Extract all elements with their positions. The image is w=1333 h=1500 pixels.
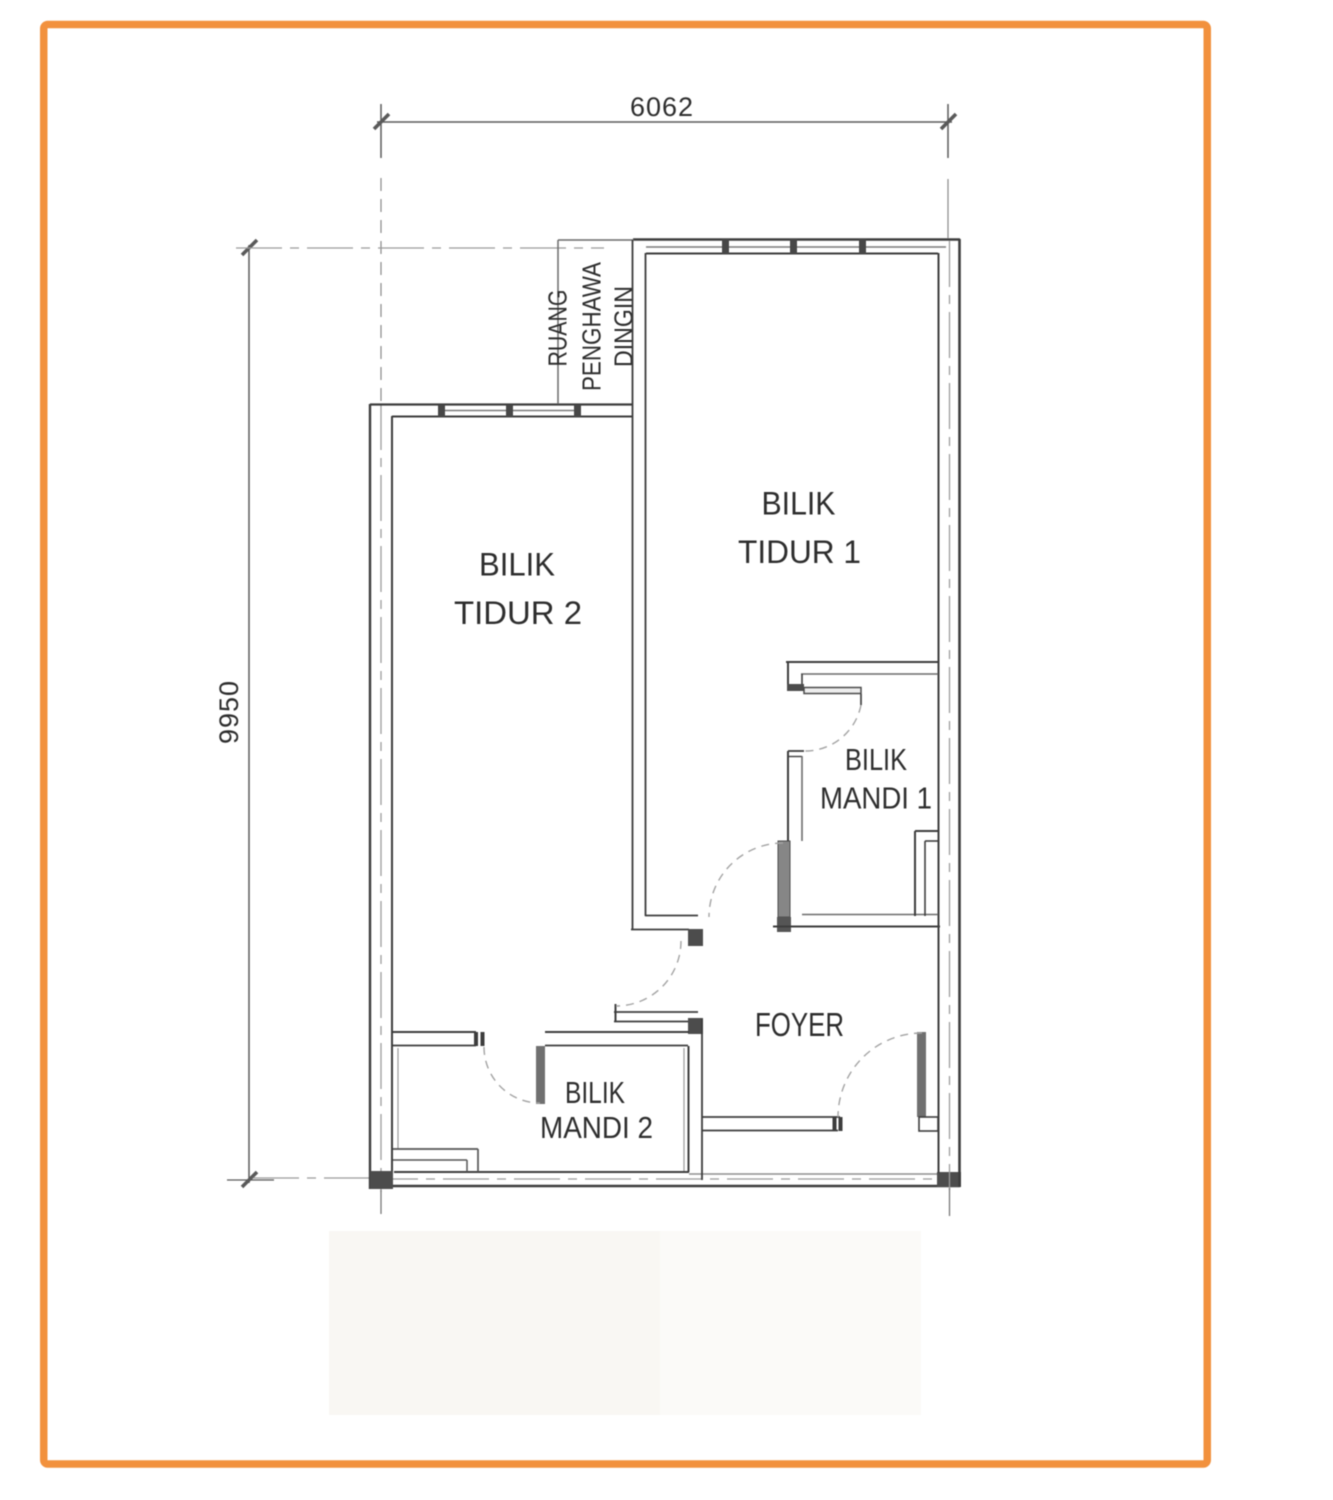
svg-text:MANDI 2: MANDI 2: [540, 1110, 653, 1145]
svg-text:BILIK: BILIK: [845, 742, 907, 777]
svg-text:TIDUR 2: TIDUR 2: [454, 595, 582, 631]
svg-text:6062: 6062: [630, 92, 694, 122]
svg-text:BILIK: BILIK: [762, 486, 836, 522]
svg-text:TIDUR 1: TIDUR 1: [738, 534, 861, 570]
svg-text:BILIK: BILIK: [565, 1075, 625, 1110]
svg-text:DINGIN: DINGIN: [609, 286, 639, 367]
svg-text:RUANG: RUANG: [543, 290, 573, 367]
svg-text:9950: 9950: [214, 680, 244, 744]
svg-text:BILIK: BILIK: [479, 547, 555, 583]
svg-text:FOYER: FOYER: [755, 1006, 844, 1043]
svg-text:MANDI 1: MANDI 1: [820, 781, 932, 816]
svg-text:PENGHAWA: PENGHAWA: [577, 261, 607, 391]
